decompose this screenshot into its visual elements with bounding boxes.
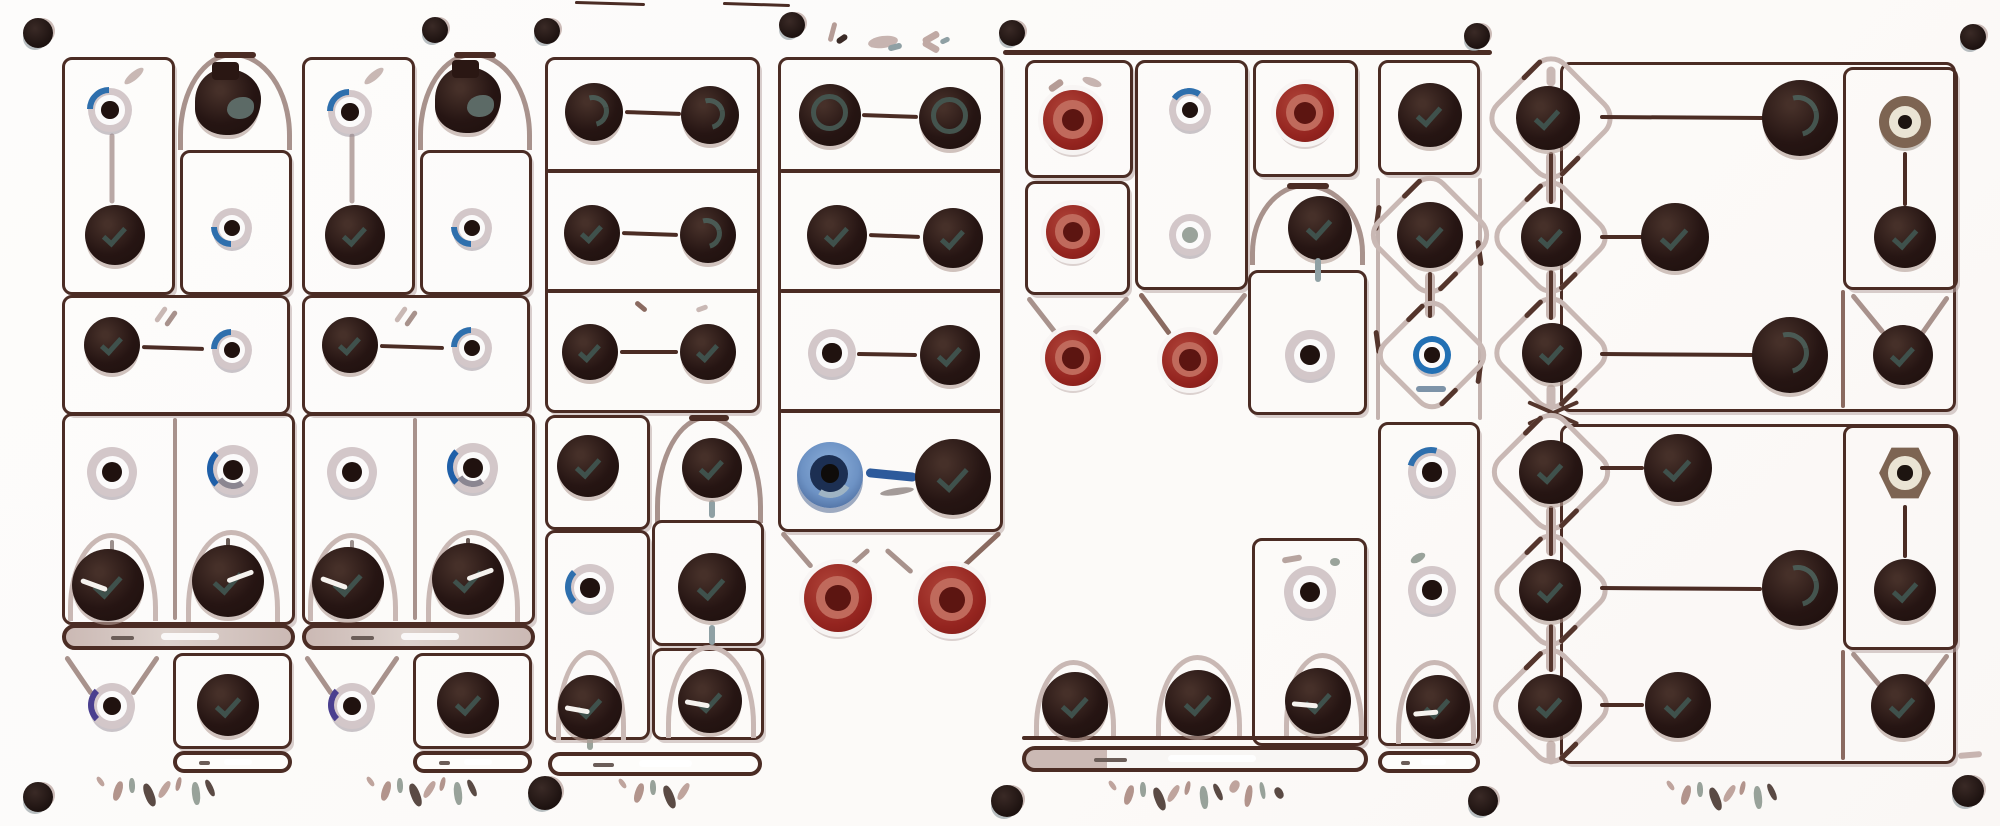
knob-detail — [1306, 214, 1333, 241]
funnel-trace — [370, 655, 400, 696]
jack-socket[interactable] — [808, 329, 856, 377]
illegible-caption-detail — [1165, 784, 1181, 804]
knob-detail — [1890, 342, 1915, 368]
panel-scribble — [1330, 558, 1340, 566]
fader-slot-detail — [639, 760, 693, 766]
knob-detail — [696, 339, 719, 363]
pointer-knob-detail — [227, 97, 255, 119]
blue-banana-jack-detail — [821, 464, 839, 482]
illegible-caption-detail — [175, 777, 183, 792]
illegible-caption-detail — [141, 782, 158, 808]
knob[interactable] — [85, 205, 145, 265]
knob[interactable] — [325, 205, 385, 265]
knob[interactable] — [919, 87, 981, 149]
knob[interactable] — [680, 207, 736, 263]
knob[interactable] — [1165, 670, 1231, 736]
illegible-caption-detail — [438, 777, 446, 792]
fader-slot[interactable] — [302, 624, 535, 650]
patch-trace — [1600, 235, 1643, 239]
illegible-caption — [368, 776, 483, 806]
jack-socket[interactable] — [1169, 89, 1211, 131]
knob-detail — [1184, 688, 1212, 716]
knob[interactable] — [1641, 203, 1709, 271]
jack-socket[interactable] — [88, 88, 132, 132]
knob[interactable] — [799, 84, 861, 146]
funnel-trace — [1212, 291, 1248, 335]
illegible-caption-detail — [1765, 783, 1778, 802]
fader-slot[interactable] — [413, 751, 532, 773]
jack-socket-detail — [328, 682, 374, 728]
illegible-caption-detail — [204, 779, 217, 798]
illegible-caption-detail — [1707, 786, 1724, 812]
jack-socket[interactable] — [212, 208, 252, 248]
illegible-caption-detail — [396, 778, 403, 793]
knob[interactable] — [192, 545, 264, 617]
knob[interactable] — [564, 205, 620, 261]
lens-ornament-detail — [1523, 535, 1544, 556]
knob[interactable] — [680, 324, 736, 380]
knob[interactable] — [807, 205, 867, 265]
fader-slot-detail — [464, 759, 493, 765]
illegible-caption — [1110, 780, 1290, 808]
knob-detail — [936, 460, 968, 493]
knob[interactable] — [1519, 440, 1583, 504]
red-banana-jack[interactable] — [1162, 332, 1218, 388]
module2-knob-arch-detail — [454, 52, 496, 58]
knob-detail — [576, 693, 603, 720]
jack-socket[interactable] — [452, 208, 492, 248]
knob-detail — [824, 222, 849, 248]
knob-detail — [578, 339, 601, 363]
panel-divider — [780, 409, 1001, 413]
mounting-screw — [422, 17, 448, 43]
jack-socket[interactable] — [327, 447, 377, 497]
illegible-caption-detail — [191, 782, 201, 806]
knob-detail — [1536, 576, 1562, 603]
knob[interactable] — [1042, 672, 1108, 738]
fader-slot-detail — [1094, 758, 1128, 762]
jack-socket[interactable] — [212, 330, 252, 370]
fader-slot[interactable] — [173, 751, 292, 773]
illegible-caption-detail — [380, 780, 393, 801]
knob[interactable] — [1762, 80, 1838, 156]
knob-stem — [709, 625, 715, 645]
jack-socket[interactable] — [448, 443, 498, 493]
knob[interactable] — [915, 439, 991, 515]
knob-detail — [574, 452, 600, 479]
illegible-caption-detail — [129, 778, 136, 793]
knob-detail — [1537, 458, 1564, 485]
fader-slot-detail — [401, 633, 460, 640]
fader-slot-detail — [1401, 761, 1410, 765]
panel-divider — [780, 289, 1001, 293]
knob-detail — [100, 332, 123, 356]
knob-detail — [1536, 692, 1563, 719]
illegible-caption-detail — [650, 780, 657, 795]
jack-socket-detail — [1422, 580, 1441, 599]
illegible-caption-detail — [1721, 784, 1737, 804]
red-banana-jack[interactable] — [1045, 330, 1101, 386]
jack-stem — [110, 133, 115, 203]
panel-divider — [1841, 290, 1845, 408]
red-banana-jack-detail — [939, 587, 965, 613]
module1-knob-arch-detail — [214, 52, 256, 58]
knob[interactable] — [1519, 559, 1581, 621]
knob[interactable] — [678, 669, 742, 733]
patch-trace — [1600, 703, 1644, 707]
jack-socket[interactable] — [329, 683, 375, 729]
knob[interactable] — [562, 324, 618, 380]
knob-detail — [699, 455, 724, 481]
knob[interactable] — [1874, 206, 1936, 268]
jack-socket[interactable] — [1169, 214, 1211, 256]
illegible-caption-detail — [632, 782, 645, 803]
illegible-caption-detail — [1753, 786, 1763, 810]
patch-trace — [1903, 505, 1907, 558]
knob-detail — [937, 342, 962, 368]
jack-socket[interactable] — [89, 683, 135, 729]
knob-detail — [687, 92, 731, 136]
illegible-caption-detail — [661, 784, 678, 810]
mounting-screw — [528, 776, 562, 810]
jack-socket[interactable] — [1284, 566, 1336, 618]
chain-link — [1549, 152, 1553, 204]
rack-top-rail — [1003, 50, 1492, 55]
synth-panel-scene — [0, 0, 2000, 826]
knob[interactable] — [565, 83, 623, 141]
illegible-caption-detail — [617, 778, 628, 790]
fader-slot-detail — [161, 633, 220, 640]
knob-detail — [811, 94, 848, 131]
module5-knob-arch-detail — [1287, 183, 1329, 189]
knob[interactable] — [1762, 550, 1838, 626]
pointer-knob-detail — [452, 60, 480, 77]
knob-detail — [580, 220, 603, 244]
lens-ornament-detail — [1437, 270, 1459, 292]
illegible-caption — [1668, 780, 1783, 806]
fader-slot[interactable] — [1378, 751, 1480, 773]
fader-slot-detail — [111, 636, 134, 640]
illegible-caption-detail — [1151, 786, 1168, 812]
panel-divider — [780, 169, 1001, 173]
knob-detail — [454, 689, 480, 716]
knob-detail — [1292, 701, 1318, 708]
red-banana-jack-detail — [1294, 102, 1316, 124]
top-edge-mark — [723, 2, 790, 7]
chain-link — [1547, 740, 1556, 764]
knob-detail — [1304, 686, 1332, 714]
red-banana-jack[interactable] — [804, 564, 872, 632]
module3-tower-arch-detail — [689, 415, 728, 421]
knob[interactable] — [72, 549, 144, 621]
jack-socket-detail — [342, 462, 362, 482]
red-banana-jack-detail — [825, 585, 851, 611]
fader-slot-detail — [1421, 759, 1445, 765]
illegible-caption-detail — [156, 780, 172, 800]
mounting-screw — [1468, 786, 1498, 816]
knob-detail — [1061, 690, 1089, 718]
jack-socket[interactable] — [566, 564, 614, 612]
knob[interactable] — [920, 325, 980, 385]
illegible-caption-detail — [1243, 785, 1253, 808]
mounting-screw — [779, 12, 805, 38]
knob-detail — [1538, 224, 1563, 250]
mounting-screw — [1960, 24, 1986, 50]
knob-detail — [1664, 690, 1692, 718]
knob-detail — [1539, 340, 1564, 366]
panel-scribble — [835, 33, 848, 45]
jack-socket-detail — [1300, 345, 1320, 365]
panel-divider — [547, 169, 758, 173]
knob-detail — [1416, 101, 1443, 128]
illegible-caption-detail — [1199, 786, 1209, 810]
panel-scribble — [939, 36, 950, 45]
chain-link — [1549, 624, 1553, 672]
hex-metal-jack-socket-detail — [1897, 465, 1912, 480]
panel-divider — [1841, 650, 1845, 760]
panel-scribble — [1958, 751, 1982, 759]
fader-slot-detail — [1168, 755, 1256, 762]
illegible-caption-detail — [1665, 780, 1676, 792]
fader-slot[interactable] — [1022, 746, 1368, 772]
jack-socket-detail — [102, 462, 122, 482]
chain-link — [1549, 270, 1553, 320]
knob[interactable] — [1752, 317, 1828, 393]
knob[interactable] — [1873, 325, 1933, 385]
lens-ornament-detail — [1521, 58, 1544, 81]
jack-socket[interactable] — [208, 445, 258, 495]
knob[interactable] — [1288, 196, 1352, 260]
blue-ring-jack[interactable] — [1413, 336, 1451, 374]
jack-socket-detail — [88, 682, 134, 728]
knob-detail — [1891, 576, 1917, 603]
red-banana-jack[interactable] — [1043, 90, 1103, 150]
mounting-screw — [23, 18, 53, 48]
illegible-caption-detail — [1696, 782, 1703, 797]
illegible-caption-detail — [407, 782, 424, 808]
illegible-caption-detail — [1680, 784, 1693, 805]
illegible-caption-detail — [1107, 780, 1118, 792]
jack-socket[interactable] — [1408, 566, 1456, 614]
knob[interactable] — [432, 543, 504, 615]
knob-detail — [931, 97, 968, 134]
knob-detail — [1663, 453, 1691, 482]
mounting-screw — [991, 785, 1023, 817]
funnel-trace — [1026, 295, 1058, 334]
mounting-screw — [999, 20, 1025, 46]
illegible-caption-detail — [1227, 779, 1241, 795]
fader-slot-detail — [199, 761, 210, 765]
fader-slot-detail — [224, 759, 253, 765]
knob[interactable] — [557, 435, 619, 497]
illegible-caption-detail — [453, 782, 463, 806]
illegible-caption — [98, 776, 223, 806]
knob[interactable] — [322, 317, 378, 373]
illegible-caption-detail — [1122, 784, 1135, 805]
jack-stem — [350, 133, 355, 203]
fader-slot-detail — [439, 761, 450, 765]
jack-socket[interactable] — [87, 447, 137, 497]
knob[interactable] — [197, 674, 259, 736]
mounting-screw — [1952, 775, 1984, 807]
red-banana-jack[interactable] — [918, 566, 986, 634]
panel-divider — [547, 289, 758, 293]
knob[interactable] — [1871, 674, 1935, 738]
jack-socket[interactable] — [1285, 330, 1335, 380]
patch-trace — [1600, 466, 1644, 470]
illegible-caption-detail — [421, 780, 437, 800]
illegible-caption — [620, 778, 695, 810]
knob[interactable] — [1874, 559, 1936, 621]
mounting-screw — [1464, 23, 1490, 49]
mounting-screw — [534, 18, 560, 44]
chain-link — [1547, 66, 1556, 86]
knob-detail — [338, 332, 361, 356]
knob-detail — [940, 225, 965, 251]
pointer-knob[interactable] — [435, 67, 501, 133]
lens-ornament-detail — [1405, 303, 1425, 323]
jack-socket[interactable] — [1408, 448, 1456, 496]
funnel-trace — [884, 547, 913, 574]
knob-detail — [1416, 220, 1444, 248]
knob[interactable] — [923, 208, 983, 268]
knob[interactable] — [682, 438, 742, 498]
knob[interactable] — [558, 675, 622, 739]
fader-slot-detail — [593, 763, 614, 767]
jack-socket-detail — [565, 563, 613, 611]
illegible-caption-detail — [465, 779, 478, 798]
knob-detail — [696, 687, 723, 714]
knob[interactable] — [1398, 83, 1462, 147]
knob[interactable] — [312, 547, 384, 619]
chain-link — [1547, 384, 1556, 410]
chain-link — [1549, 506, 1553, 556]
knob[interactable] — [681, 86, 739, 144]
knob-detail — [1770, 88, 1827, 145]
knob[interactable] — [1406, 675, 1470, 739]
funnel-trace — [780, 530, 814, 568]
knob-stem — [1315, 258, 1321, 282]
knob-stem — [709, 500, 715, 518]
knob-detail — [1534, 104, 1561, 131]
knob-detail — [342, 222, 367, 248]
funnel-trace — [1092, 295, 1130, 334]
knob[interactable] — [1645, 672, 1711, 738]
patch-trace — [1903, 152, 1907, 206]
lens-ornament-detail — [1522, 415, 1544, 437]
blue-ring-jack-detail — [1424, 347, 1439, 362]
illegible-caption-detail — [111, 780, 124, 801]
knob[interactable] — [678, 553, 746, 621]
lens-ornament-detail — [1401, 178, 1423, 200]
knob-detail — [102, 222, 127, 248]
red-banana-jack[interactable] — [1046, 205, 1100, 259]
funnel-trace — [304, 655, 334, 696]
knob-detail — [1660, 222, 1688, 251]
lens-ornament-detail — [1523, 182, 1544, 203]
knob-detail — [1760, 325, 1817, 382]
knob[interactable] — [84, 317, 140, 373]
knob[interactable] — [1516, 86, 1580, 150]
illegible-caption-detail — [1211, 783, 1224, 802]
knob-stem — [587, 738, 593, 750]
patch-trace — [620, 350, 678, 354]
knob-detail — [1889, 692, 1916, 719]
mounting-screw — [23, 782, 53, 812]
illegible-caption-detail — [1273, 786, 1286, 800]
knob[interactable] — [1518, 674, 1582, 738]
jack-socket[interactable] — [452, 328, 492, 368]
red-banana-jack[interactable] — [1276, 84, 1334, 142]
fader-slot[interactable] — [548, 752, 762, 776]
lens-ornament-detail — [1523, 298, 1544, 319]
jack-socket-detail — [822, 343, 841, 362]
knob[interactable] — [1285, 668, 1351, 734]
illegible-caption-detail — [1140, 782, 1147, 797]
funnel-trace — [64, 655, 94, 696]
knob-detail — [214, 691, 240, 718]
knob[interactable] — [1521, 207, 1581, 267]
illegible-caption-detail — [675, 782, 691, 802]
metal-jack-socket[interactable] — [1879, 96, 1931, 148]
knob[interactable] — [437, 672, 499, 734]
illegible-caption-detail — [365, 776, 376, 788]
red-banana-jack-detail — [1062, 347, 1083, 368]
red-banana-jack-detail — [1179, 349, 1200, 370]
jack-socket[interactable] — [328, 90, 372, 134]
blue-banana-jack[interactable] — [797, 442, 863, 508]
pointer-knob-detail — [467, 95, 495, 117]
knob[interactable] — [1522, 323, 1582, 383]
knob-detail — [1770, 558, 1827, 615]
panel-scribble — [1416, 386, 1446, 392]
lens-ornament-detail — [1523, 650, 1544, 671]
panel-divider — [413, 418, 417, 620]
pointer-knob[interactable] — [195, 69, 261, 135]
panel-divider — [173, 418, 177, 620]
illegible-caption-detail — [1183, 781, 1191, 796]
knob[interactable] — [1397, 202, 1463, 268]
knob-detail — [1424, 693, 1451, 720]
knob-detail — [686, 213, 728, 255]
fader-slot[interactable] — [62, 624, 295, 650]
pointer-knob-detail — [212, 62, 240, 79]
funnel-trace — [960, 530, 1001, 569]
illegible-caption-detail — [1259, 782, 1267, 800]
funnel-trace — [130, 655, 160, 696]
illegible-caption-detail — [95, 776, 106, 788]
funnel-trace — [1138, 292, 1172, 336]
top-edge-mark — [575, 1, 645, 6]
knob-detail — [697, 572, 725, 601]
fader-slot-detail — [351, 636, 374, 640]
knob[interactable] — [1644, 434, 1712, 502]
illegible-caption-detail — [1738, 781, 1746, 796]
knob-detail — [1891, 223, 1917, 250]
knob-detail — [571, 89, 615, 133]
